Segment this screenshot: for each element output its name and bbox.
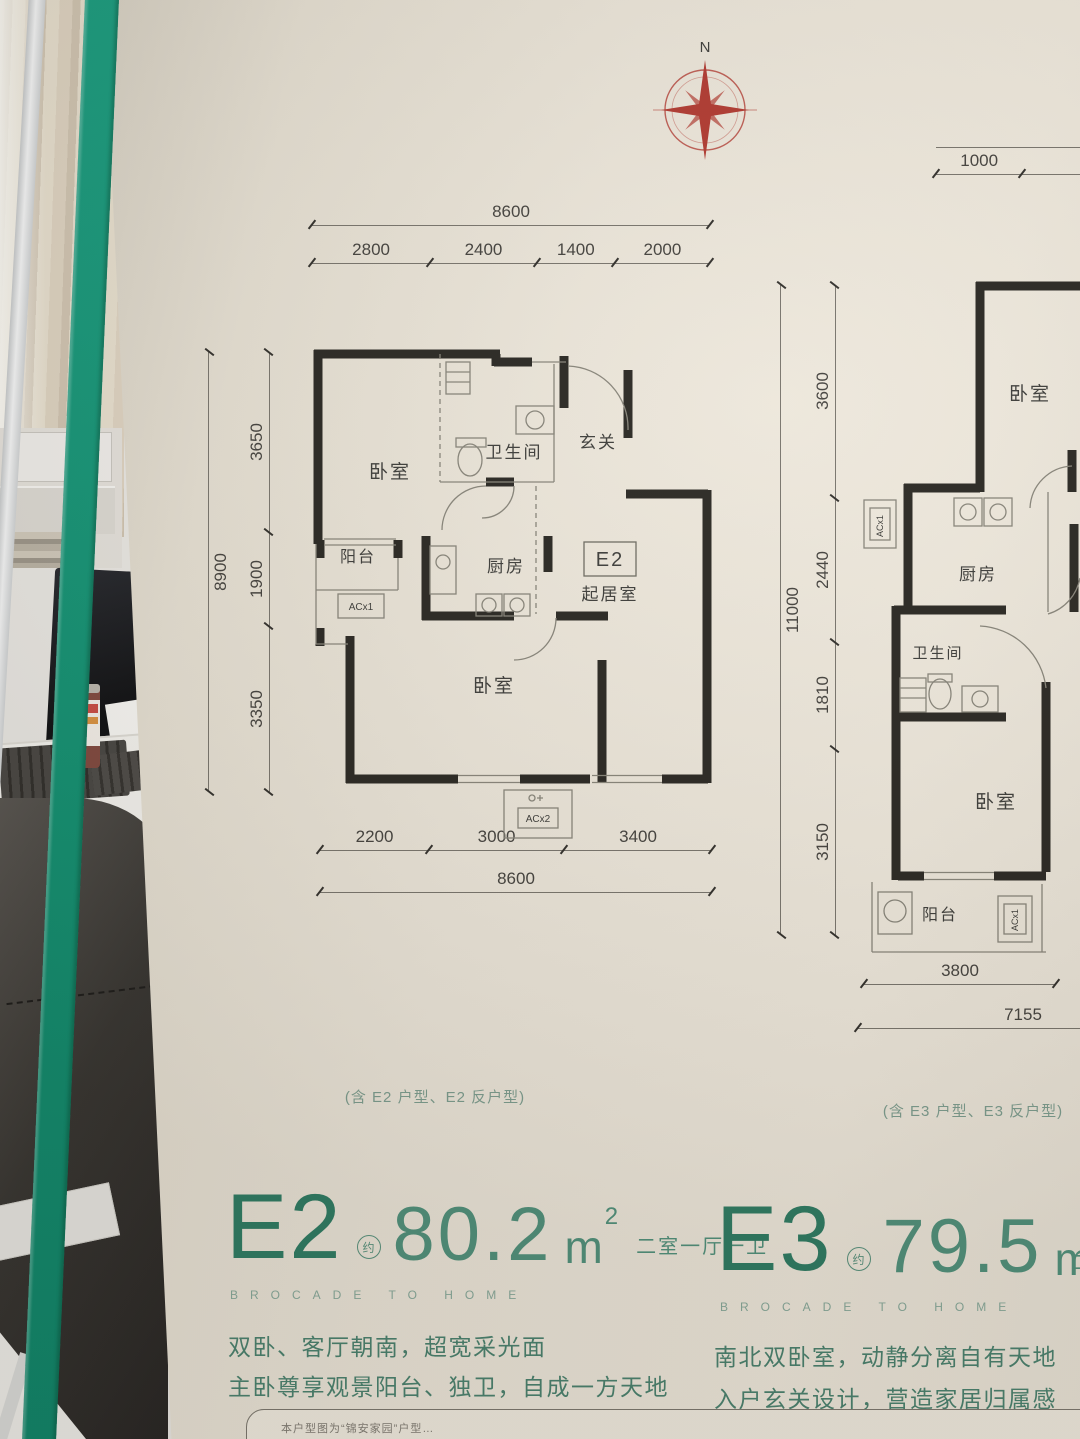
dim-label: 8600 <box>492 202 530 221</box>
e3-ac-balcony-label: ACx1 <box>1010 909 1020 931</box>
dim-label: 1400 <box>557 240 595 259</box>
e3-title-block: E3 约 79.5 m 2 <box>716 1202 1080 1277</box>
e2-area-sup: 2 <box>605 1203 618 1231</box>
e3-dim-top-partial-line <box>936 147 1080 148</box>
e2-ac-south-label: ACx2 <box>526 814 551 825</box>
dim-label: 3350 <box>247 690 267 728</box>
dim-label: 1000 <box>960 151 998 170</box>
e3-room-balcony: 阳台 <box>922 906 958 924</box>
e3-area-value: 79.5 <box>883 1217 1043 1278</box>
dim-label: 1900 <box>247 561 267 599</box>
dim-label: 8600 <box>497 869 535 888</box>
e2-ac-balcony-label: ACx1 <box>349 602 374 613</box>
e2-room-kitchen: 厨房 <box>487 557 525 576</box>
e2-room-entry: 玄关 <box>579 433 617 452</box>
e3-dim-left-total: 11000 <box>776 285 810 935</box>
e3-dim-bottom-total: 7155 <box>858 1006 1080 1032</box>
poster-content: N 8600 2800 2400 1400 2000 8900 <box>0 0 1080 1439</box>
e3-dim-top-segments: 1000 2800 <box>936 152 1080 178</box>
e2-room-living: 起居室 <box>582 585 639 604</box>
e2-title-code: E2 <box>226 1190 343 1265</box>
e2-unit-tag: E2 <box>596 549 624 571</box>
e2-floor-plan: 卧室 卫生间 玄关 阳台 厨房 E2 起居室 卧室 ACx1 ACx2 <box>310 346 714 846</box>
e2-area-value: 80.2 <box>393 1205 553 1266</box>
e3-desc-line1: 南北双卧室，动静分离自有天地 <box>714 1338 1057 1372</box>
e3-dim-left-segments: 3600 2440 1810 3150 <box>806 285 840 935</box>
photo-of-floorplan-poster: N 8600 2800 2400 1400 2000 8900 <box>0 0 1080 1439</box>
e2-room-balcony: 阳台 <box>340 548 376 566</box>
e2-desc-line2: 主卧尊享观景阳台、独卫，自成一方天地 <box>228 1368 669 1402</box>
dim-label: 2000 <box>643 240 681 259</box>
compass-star-main <box>661 60 749 160</box>
e2-dim-top-segments: 2800 2400 1400 2000 <box>312 241 710 267</box>
e2-desc-line1: 双卧、客厅朝南，超宽采光面 <box>228 1328 547 1362</box>
e2-dim-bottom-total: 8600 <box>320 870 712 896</box>
dim-label: 7155 <box>1004 1005 1042 1024</box>
dim-label: 3150 <box>813 823 833 861</box>
compass-rose: N <box>645 30 765 170</box>
e2-approx-badge: 约 <box>357 1235 381 1259</box>
e3-slogan: BROCADE TO HOME <box>720 1300 1018 1314</box>
e2-room-bedroom-south: 卧室 <box>473 675 515 697</box>
e3-ac-left-label: ACx1 <box>875 515 885 537</box>
e2-dim-left-total: 8900 <box>204 352 238 792</box>
dim-label: 1810 <box>813 676 833 714</box>
e3-room-bedroom-south: 卧室 <box>975 791 1017 813</box>
e2-area-unit: m <box>564 1229 602 1266</box>
e2-variant-note: (含 E2 户型、E2 反户型) <box>335 1086 535 1107</box>
e3-variant-note: (含 E3 户型、E3 反户型) <box>878 1100 1068 1121</box>
e3-room-bathroom: 卫生间 <box>912 645 963 662</box>
e2-dim-left-segments: 3650 1900 3350 <box>240 352 274 792</box>
disclaimer-text: 本户型图为“锦安家园”户型… <box>281 1420 434 1436</box>
e3-floor-plan: 卧室 厨房 卫生间 卧室 阳台 ACx1 ACx1 <box>860 280 1080 975</box>
dim-label: 3650 <box>247 423 267 461</box>
e2-title-block: E2 约 80.2 m 2 二室一厅一卫 <box>226 1190 768 1265</box>
dim-label: 11000 <box>783 587 803 633</box>
e2-room-bathroom: 卫生间 <box>486 443 543 462</box>
e3-room-bedroom-north: 卧室 <box>1009 383 1051 405</box>
e3-layout-text: 二室 <box>1072 1246 1080 1281</box>
dim-label: 3600 <box>813 372 833 410</box>
e2-slogan: BROCADE TO HOME <box>230 1288 528 1302</box>
e2-dim-top-total: 8600 <box>312 203 710 229</box>
compass-north-label: N <box>700 39 711 56</box>
e3-title-code: E3 <box>716 1202 833 1277</box>
e3-approx-badge: 约 <box>847 1247 871 1271</box>
dim-label: 2800 <box>352 240 390 259</box>
e2-room-bedroom-north: 卧室 <box>369 461 411 483</box>
dim-label: 2400 <box>465 240 503 259</box>
dim-label: 2440 <box>813 551 833 589</box>
disclaimer-box: 本户型图为“锦安家园”户型… <box>246 1409 1080 1439</box>
e3-room-kitchen: 厨房 <box>959 565 997 584</box>
dim-label: 8900 <box>211 553 231 591</box>
